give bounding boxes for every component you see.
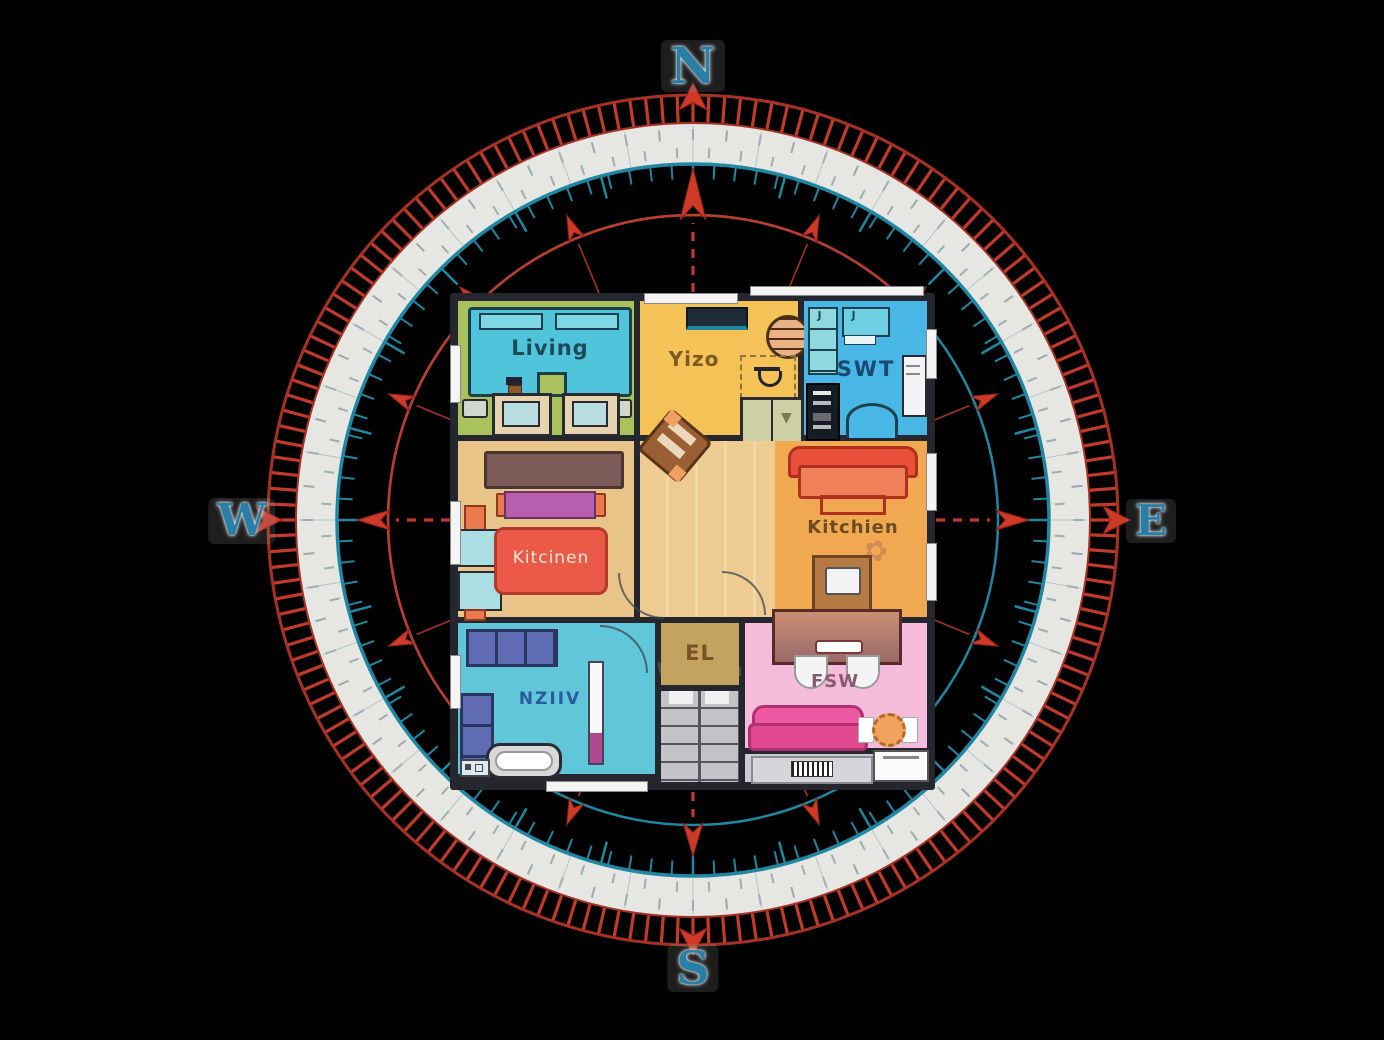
window (644, 293, 738, 304)
window (450, 345, 461, 403)
closet-arrow-icon: ▼ (781, 410, 792, 426)
closet-divider (771, 400, 773, 444)
pink-sofa-seat (748, 723, 868, 751)
room-el: EL (661, 623, 739, 685)
door-arc (722, 571, 766, 615)
window (926, 543, 937, 601)
stair-landing (705, 691, 729, 704)
oven-panel (813, 425, 831, 429)
oven-door (813, 413, 831, 421)
window-ledge (750, 286, 924, 296)
window (450, 501, 461, 565)
kitchien-sofa-base (820, 495, 886, 515)
door-arc (600, 625, 648, 673)
nightstand-top (572, 401, 608, 427)
yizo-label: Yizo (644, 347, 744, 371)
el-label: EL (661, 641, 739, 665)
shelf (844, 335, 876, 345)
oven-panel (813, 391, 831, 395)
closet: ▼ (740, 397, 804, 447)
tv-console (686, 307, 748, 330)
desk (812, 555, 872, 613)
room-kitcinen: Kitcinen (458, 441, 634, 617)
kitcinen-sofa-label: Kitcinen (497, 548, 605, 568)
room-swt: J J SWT (804, 301, 927, 435)
bathtub-basin (495, 751, 553, 771)
sideboard (484, 451, 624, 489)
fsw-desk (772, 609, 902, 665)
kitcinen-sofa: Kitcinen (494, 527, 608, 595)
window (546, 781, 648, 792)
floor-lamp (588, 661, 604, 765)
fridge-line (906, 365, 920, 367)
compass-north-label: N (661, 40, 725, 92)
shower-fixture (460, 759, 490, 777)
fridge-line (906, 373, 920, 375)
room-living: Living (458, 301, 634, 435)
desk-slot (815, 640, 863, 654)
staircase (661, 691, 739, 782)
swt-label: SWT (816, 357, 916, 381)
bathtub (486, 743, 562, 779)
fsw-label: FSW (780, 671, 890, 692)
wall-sconce (462, 399, 488, 418)
appliance-line (883, 756, 919, 759)
chair-cushion (668, 464, 686, 482)
sofa (466, 629, 558, 667)
living-label: Living (471, 336, 629, 360)
bench (504, 491, 596, 519)
compass-east-label: E (1126, 499, 1176, 543)
side-table (464, 505, 486, 531)
nightstand (492, 393, 552, 437)
kitchien-sofa-seat (798, 465, 908, 499)
kitchien-label: Kitchien (778, 517, 928, 538)
window (926, 453, 937, 511)
nightstand-top (502, 401, 540, 427)
room-widhen: Widhen Kitchien ✿ (640, 441, 927, 617)
compass-south-label: S (667, 944, 718, 992)
house-floorplan: Living Yizo ▼ (450, 293, 935, 790)
room-nziv: NZIIV (458, 623, 655, 774)
closet-tag: J (846, 309, 862, 322)
fixture-knob (475, 764, 483, 772)
nightstand (562, 393, 620, 437)
window (450, 655, 461, 709)
fixture-knob (465, 764, 471, 770)
stair-landing (669, 691, 693, 704)
oven-panel (813, 401, 831, 405)
room-fsw: FSW (745, 623, 927, 748)
compass-west-label: W (208, 498, 275, 544)
utility-counter (745, 754, 927, 782)
stair-steps (661, 691, 739, 782)
plant (506, 377, 522, 385)
bed-notch (537, 372, 567, 394)
oven (806, 383, 840, 441)
round-table (872, 713, 906, 747)
desk-screen (825, 567, 861, 595)
white-appliance (873, 750, 929, 782)
bed-pillow (479, 313, 543, 330)
closet-tag: J (812, 309, 828, 322)
fridge (902, 355, 927, 417)
floorplan-compass-illustration: N E S W Living Yizo (0, 0, 1384, 1040)
room-yizo: Yizo ▼ (640, 301, 798, 435)
barcode-label (791, 761, 833, 777)
living-bed: Living (468, 307, 632, 397)
window (926, 329, 937, 379)
side-table (464, 609, 486, 621)
arch-doorway (846, 403, 898, 438)
bed-pillow (555, 313, 619, 330)
